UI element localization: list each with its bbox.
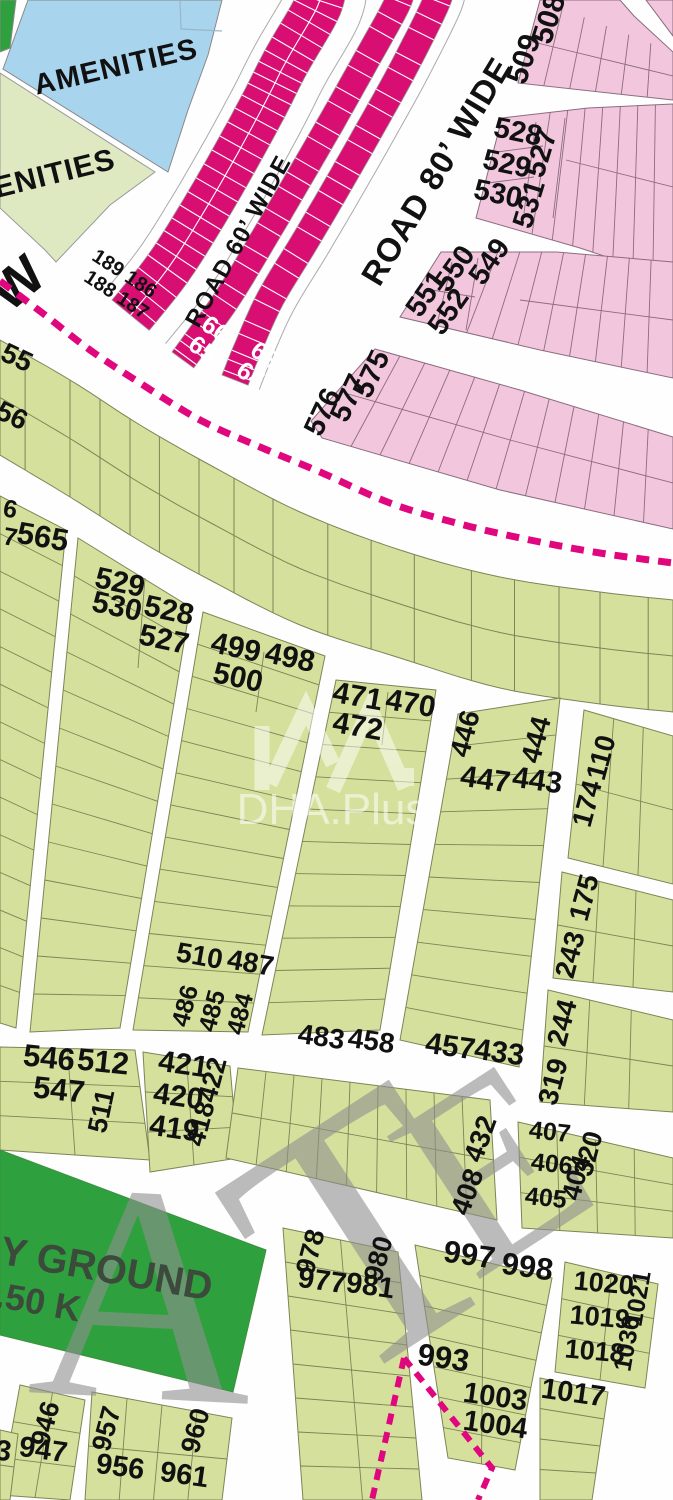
svg-text:993: 993 xyxy=(415,1337,471,1379)
svg-text:457: 457 xyxy=(423,1027,477,1067)
svg-text:447: 447 xyxy=(458,760,512,800)
svg-text:947: 947 xyxy=(17,1431,69,1469)
svg-text:956: 956 xyxy=(94,1448,146,1486)
svg-text:458: 458 xyxy=(346,1022,397,1059)
svg-text:443: 443 xyxy=(510,761,564,801)
svg-text:997: 997 xyxy=(441,1234,497,1276)
svg-text:483: 483 xyxy=(296,1018,347,1055)
svg-text:547: 547 xyxy=(32,1069,87,1109)
svg-text:407: 407 xyxy=(528,1116,572,1148)
svg-text:DHA.Plus: DHA.Plus xyxy=(237,785,428,834)
svg-text:433: 433 xyxy=(472,1033,526,1073)
svg-text:961: 961 xyxy=(158,1456,210,1494)
svg-text:977: 977 xyxy=(296,1262,348,1300)
svg-text:998: 998 xyxy=(499,1246,555,1288)
